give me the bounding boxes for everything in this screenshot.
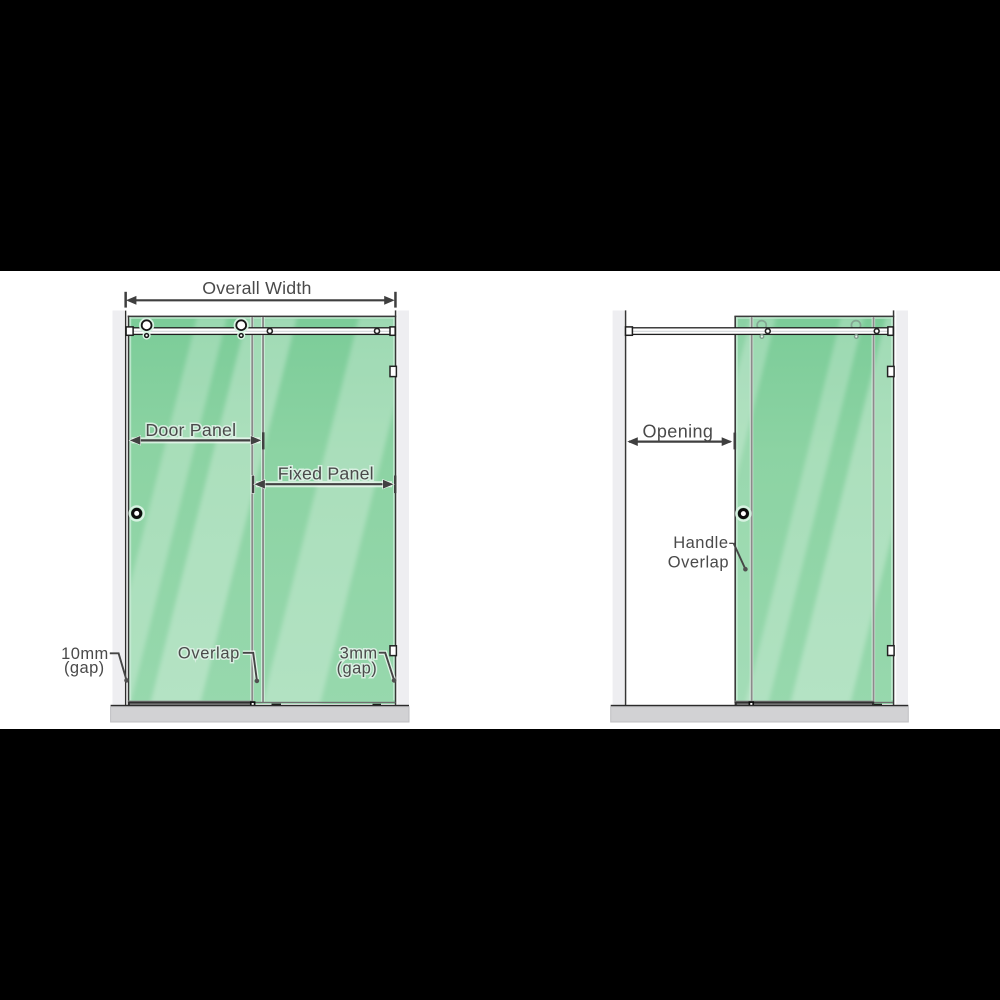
svg-text:Fixed Panel: Fixed Panel: [278, 464, 374, 484]
svg-text:Overlap: Overlap: [178, 645, 240, 663]
svg-text:(gap): (gap): [337, 659, 378, 677]
svg-text:Door Panel: Door Panel: [145, 420, 236, 440]
svg-text:(gap): (gap): [64, 659, 105, 677]
svg-text:Handle-: Handle-: [673, 534, 734, 552]
svg-text:Opening: Opening: [642, 421, 713, 441]
svg-text:Overlap: Overlap: [668, 553, 729, 571]
svg-text:Overall Width: Overall Width: [202, 278, 311, 298]
